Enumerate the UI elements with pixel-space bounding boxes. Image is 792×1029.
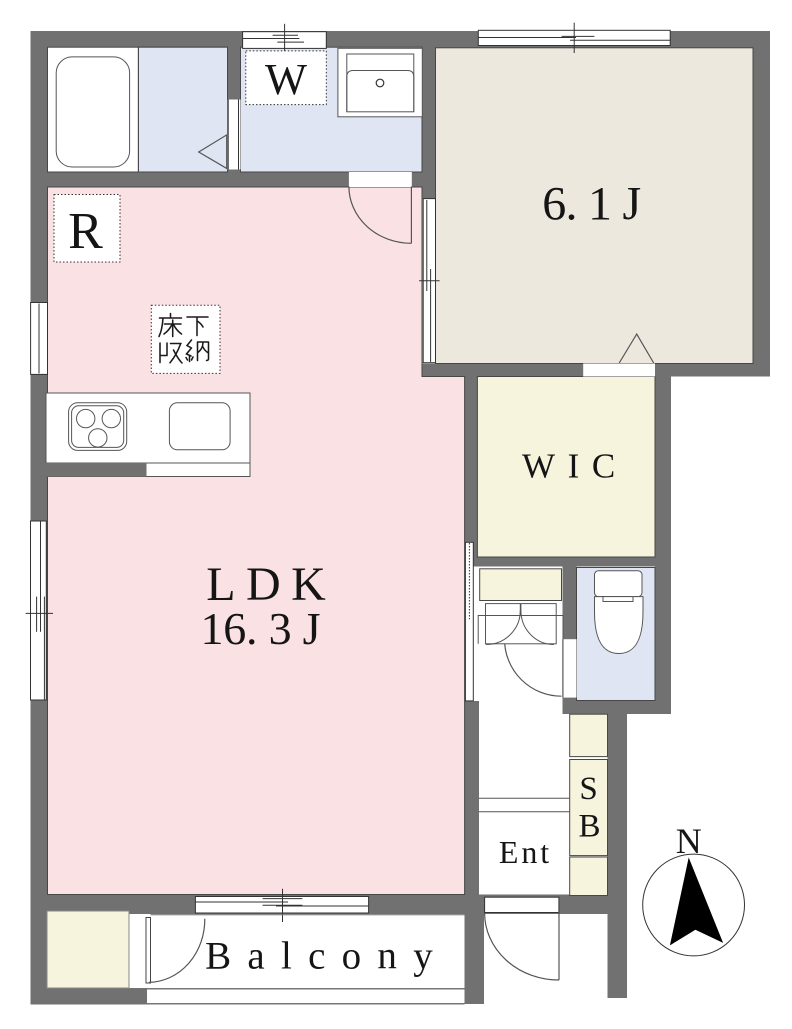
- svg-text:6. 1 J: 6. 1 J: [542, 178, 641, 231]
- svg-text:B: B: [578, 809, 600, 845]
- svg-text:W: W: [265, 54, 307, 104]
- svg-text:S: S: [579, 771, 597, 807]
- svg-text:Ent: Ent: [499, 834, 549, 870]
- svg-text:WIC: WIC: [522, 447, 615, 486]
- svg-text:16. 3 J: 16. 3 J: [201, 603, 321, 654]
- svg-text:N: N: [676, 821, 702, 861]
- svg-text:R: R: [68, 203, 103, 260]
